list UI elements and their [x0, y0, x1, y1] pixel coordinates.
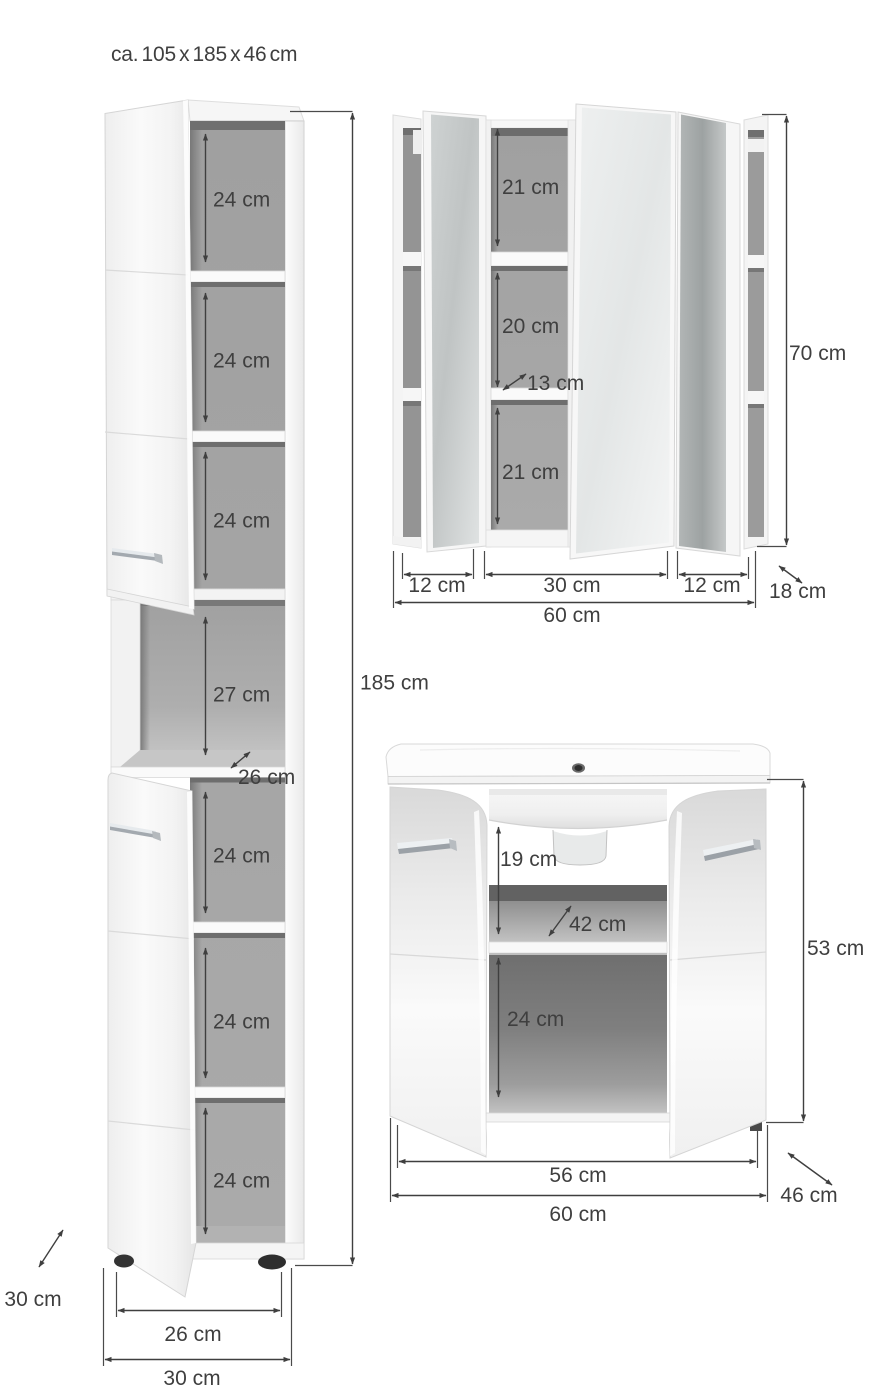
svg-text:20 cm: 20 cm: [502, 315, 559, 338]
svg-text:24 cm: 24 cm: [213, 1011, 270, 1034]
svg-text:19 cm: 19 cm: [500, 848, 557, 871]
svg-text:60 cm: 60 cm: [549, 1203, 606, 1226]
svg-text:185 cm: 185 cm: [360, 672, 429, 695]
svg-text:70 cm: 70 cm: [789, 342, 846, 365]
svg-text:27 cm: 27 cm: [213, 684, 270, 707]
svg-text:30 cm: 30 cm: [163, 1367, 220, 1390]
svg-text:21 cm: 21 cm: [502, 461, 559, 484]
svg-text:26 cm: 26 cm: [164, 1323, 221, 1346]
svg-text:24 cm: 24 cm: [213, 189, 270, 212]
svg-text:46 cm: 46 cm: [780, 1184, 837, 1207]
svg-text:13 cm: 13 cm: [527, 372, 584, 395]
svg-text:24 cm: 24 cm: [507, 1008, 564, 1031]
svg-text:26 cm: 26 cm: [238, 766, 295, 789]
svg-text:42 cm: 42 cm: [569, 913, 626, 936]
svg-text:24 cm: 24 cm: [213, 350, 270, 373]
svg-text:ca. 105 x 185 x 46 cm: ca. 105 x 185 x 46 cm: [111, 43, 297, 66]
svg-text:21 cm: 21 cm: [502, 176, 559, 199]
svg-text:12 cm: 12 cm: [408, 574, 465, 597]
svg-text:30 cm: 30 cm: [543, 574, 600, 597]
svg-text:24 cm: 24 cm: [213, 510, 270, 533]
svg-text:56 cm: 56 cm: [549, 1164, 606, 1187]
svg-text:24 cm: 24 cm: [213, 845, 270, 868]
svg-text:53 cm: 53 cm: [807, 937, 864, 960]
svg-text:24 cm: 24 cm: [213, 1170, 270, 1193]
svg-text:12 cm: 12 cm: [683, 574, 740, 597]
svg-text:18 cm: 18 cm: [769, 580, 826, 603]
svg-text:60 cm: 60 cm: [543, 604, 600, 627]
svg-text:30 cm: 30 cm: [4, 1288, 61, 1311]
